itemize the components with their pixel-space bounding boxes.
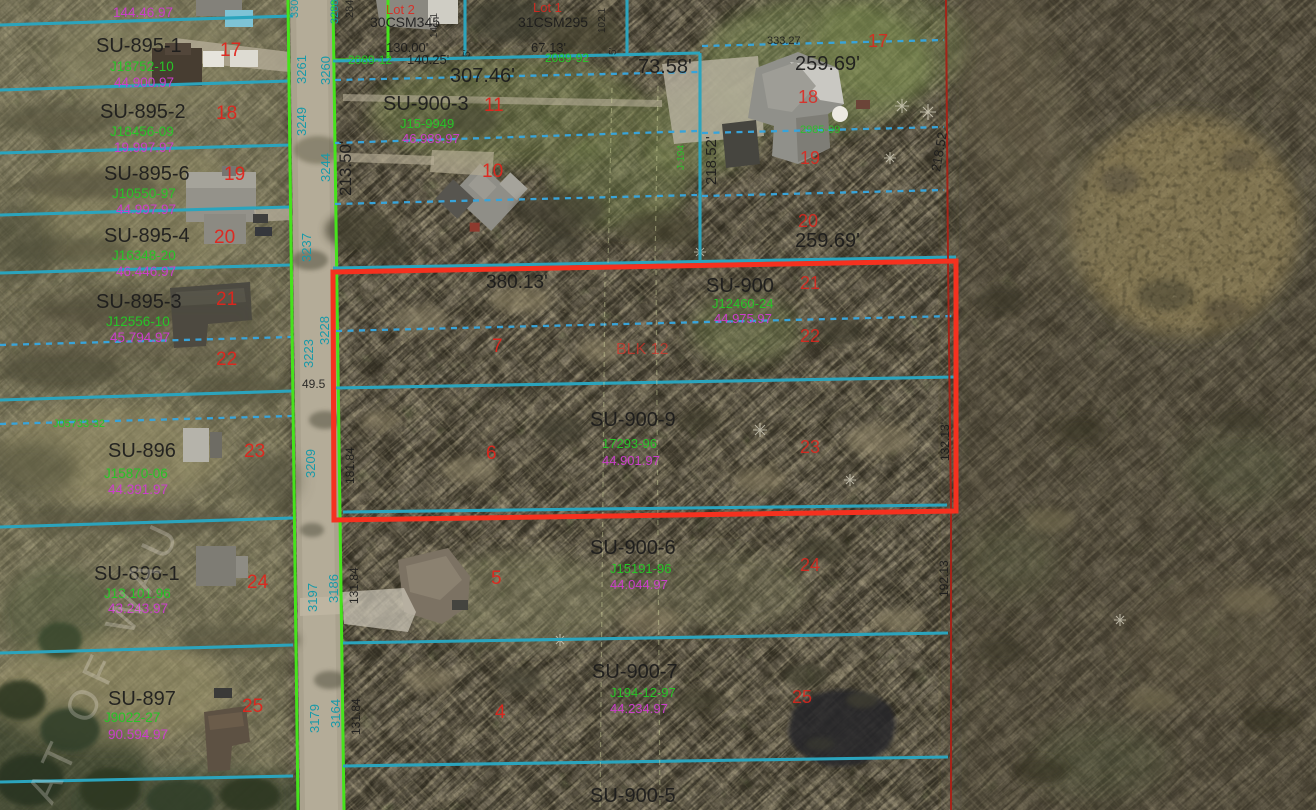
svg-text:3260: 3260 [318,56,333,85]
svg-text:SU-897: SU-897 [108,688,176,710]
svg-text:J05733-32: J05733-32 [53,418,105,430]
svg-text:307.46': 307.46' [450,65,515,87]
svg-text:3302: 3302 [289,0,301,18]
svg-text:73.58': 73.58' [638,56,692,78]
svg-text:192.13: 192.13 [937,560,951,597]
svg-text:18: 18 [798,87,818,107]
svg-text:SU-896: SU-896 [108,440,176,462]
svg-text:25: 25 [242,696,263,717]
svg-text:J15191-96: J15191-96 [610,561,671,576]
svg-text:SU-895-3: SU-895-3 [96,291,182,313]
svg-text:23: 23 [244,441,265,462]
svg-text:259.69': 259.69' [795,230,860,252]
svg-text:24: 24 [247,572,269,593]
svg-text:140.25': 140.25' [407,52,449,67]
svg-text:3288: 3288 [329,0,341,24]
svg-text:5: 5 [491,568,502,589]
svg-text:J9022-27: J9022-27 [104,710,160,725]
svg-text:44.234.97: 44.234.97 [610,701,668,716]
svg-text:333.27: 333.27 [767,35,801,47]
svg-text:20: 20 [214,227,235,248]
svg-text:44.975.97: 44.975.97 [714,311,772,326]
svg-text:7: 7 [492,336,503,357]
svg-text:17: 17 [220,40,241,61]
svg-text:J12556-10: J12556-10 [106,314,170,329]
svg-text:BLK 12: BLK 12 [616,341,669,358]
svg-text:SU-900-5: SU-900-5 [590,785,676,807]
svg-text:4: 4 [495,702,506,723]
svg-text:22: 22 [800,326,820,346]
svg-text:46.989.97: 46.989.97 [402,131,460,146]
svg-text:SU-900-6: SU-900-6 [590,537,676,559]
svg-text:J15870-06: J15870-06 [104,466,168,481]
svg-text:SU-895-1: SU-895-1 [96,35,182,57]
svg-text:Lot 1: Lot 1 [533,0,562,15]
svg-text:5': 5' [462,49,473,57]
svg-text:J194-12-97: J194-12-97 [610,685,676,700]
svg-text:3223: 3223 [301,339,316,368]
svg-text:102.1: 102.1 [597,8,608,33]
svg-text:6: 6 [486,443,497,464]
svg-text:90.594.97: 90.594.97 [108,727,168,742]
svg-text:SU-895-2: SU-895-2 [100,101,186,123]
svg-text:19: 19 [224,164,245,185]
svg-text:11: 11 [484,95,504,116]
svg-text:25: 25 [792,687,812,707]
svg-text:21: 21 [216,289,237,310]
svg-text:49.5: 49.5 [302,377,326,391]
svg-text:J18456-09: J18456-09 [110,124,174,139]
svg-text:J-194: J-194 [676,145,687,170]
svg-text:3197: 3197 [305,583,320,612]
svg-text:3228: 3228 [317,316,332,345]
svg-text:380.13': 380.13' [486,272,548,293]
svg-text:SU-900: SU-900 [706,275,774,297]
svg-text:23: 23 [800,437,820,457]
svg-text:19: 19 [800,148,820,168]
svg-text:SU-895-4: SU-895-4 [104,225,190,247]
svg-text:141.1: 141.1 [429,13,440,38]
svg-text:10: 10 [482,161,503,182]
svg-text:19.997.97: 19.997.97 [114,140,174,155]
svg-text:3244: 3244 [318,153,333,182]
svg-text:45.794.97: 45.794.97 [110,330,170,345]
svg-text:5': 5' [608,47,619,55]
svg-text:3179: 3179 [307,704,322,733]
svg-text:44.997.97: 44.997.97 [116,202,176,217]
svg-text:21: 21 [800,273,820,293]
svg-text:SU-900-7: SU-900-7 [592,661,678,683]
svg-text:181.84: 181.84 [343,447,357,484]
svg-text:218.52': 218.52' [703,136,720,185]
svg-text:131.84: 131.84 [347,567,361,604]
svg-text:284: 284 [344,0,356,18]
svg-text:31CSM295: 31CSM295 [518,14,588,30]
svg-text:17293-96: 17293-96 [602,436,657,451]
svg-text:SU-900-9: SU-900-9 [590,409,676,431]
svg-text:3186: 3186 [326,574,341,603]
svg-text:44.900.97: 44.900.97 [114,75,174,90]
svg-text:259.69': 259.69' [795,53,860,75]
svg-text:46.446.97: 46.446.97 [116,264,176,279]
svg-text:213.50': 213.50' [336,141,355,196]
svg-text:J15-9949: J15-9949 [400,116,454,131]
svg-text:144.46.97: 144.46.97 [113,5,173,20]
svg-text:24: 24 [800,555,820,575]
svg-text:18: 18 [216,103,237,124]
svg-text:3209: 3209 [303,449,318,478]
svg-text:3249: 3249 [294,107,309,136]
svg-text:44.391.97: 44.391.97 [108,482,168,497]
svg-text:22: 22 [216,349,237,370]
svg-text:3237: 3237 [299,233,314,262]
svg-text:J10550-97: J10550-97 [112,186,176,201]
svg-text:131.84: 131.84 [349,698,363,735]
svg-text:3261: 3261 [294,55,309,84]
svg-text:SU-900-3: SU-900-3 [383,93,469,115]
svg-text:J16348-20: J16348-20 [112,248,176,263]
svg-text:20: 20 [798,211,818,231]
svg-text:44.044.97: 44.044.97 [610,577,668,592]
svg-text:J18752-10: J18752-10 [110,59,174,74]
svg-text:J12460-24: J12460-24 [712,296,773,311]
svg-text:132.13': 132.13' [938,422,952,461]
svg-text:3164: 3164 [328,699,343,728]
svg-text:SU-895-6: SU-895-6 [104,163,190,185]
svg-text:2089-92: 2089-92 [545,51,589,65]
svg-text:44.901.97: 44.901.97 [602,453,660,468]
svg-text:17: 17 [868,31,888,51]
svg-text:2089-12: 2089-12 [348,53,392,67]
svg-text:2985-99: 2985-99 [800,124,840,136]
